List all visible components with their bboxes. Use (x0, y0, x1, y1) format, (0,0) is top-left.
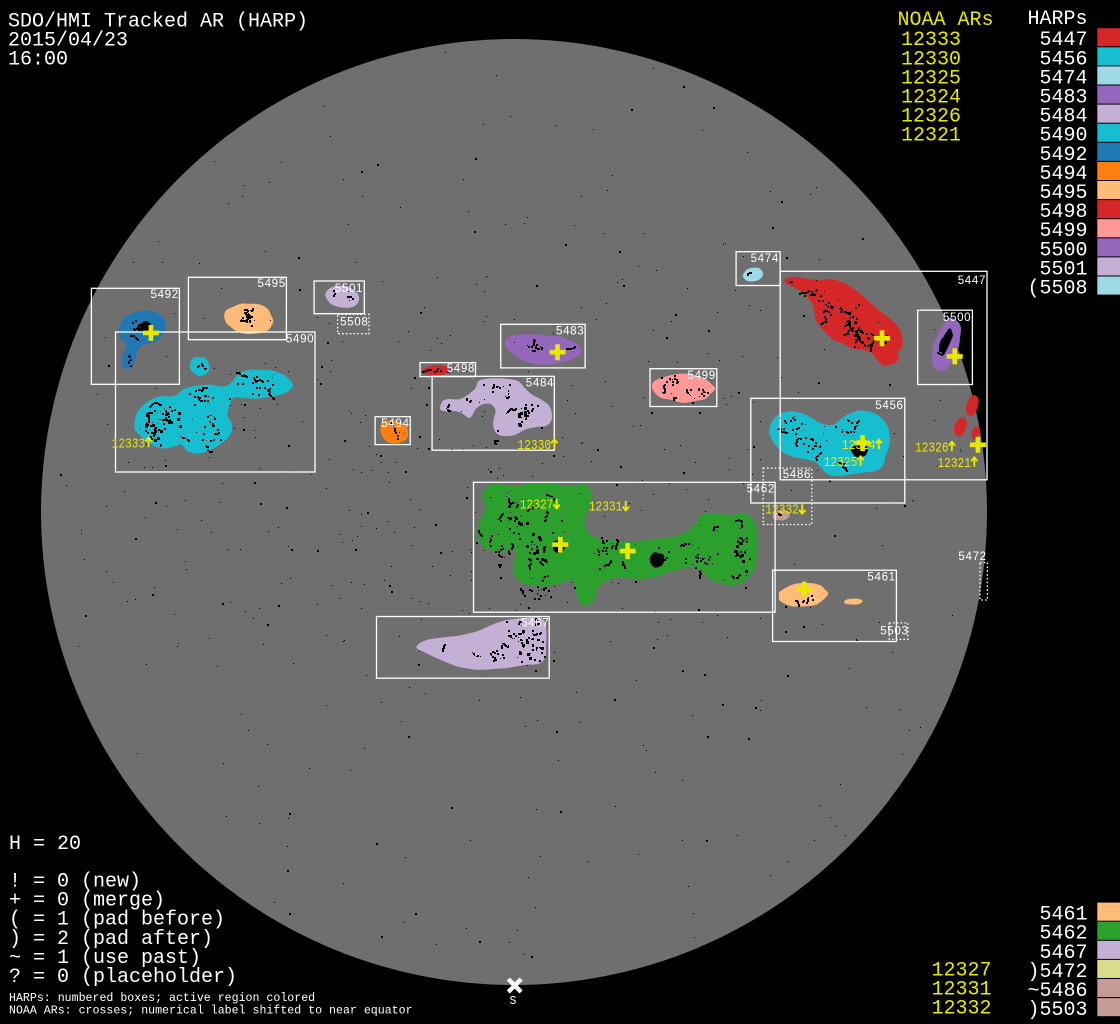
svg-text:HARPs: numbered boxes; active: HARPs: numbered boxes; active region col… (9, 992, 315, 1005)
svg-text:5467: 5467 (521, 616, 549, 629)
svg-text:5500: 5500 (943, 311, 971, 324)
svg-text:5447: 5447 (958, 274, 986, 287)
svg-text:12330: 12330 (518, 439, 552, 454)
svg-text:12332: 12332 (765, 504, 799, 519)
svg-text:12331: 12331 (589, 500, 623, 515)
svg-text:5462: 5462 (747, 482, 775, 495)
svg-text:16:00: 16:00 (8, 49, 68, 72)
svg-text:5492: 5492 (151, 288, 179, 301)
svg-text:5484: 5484 (526, 377, 554, 390)
svg-text:5474: 5474 (751, 252, 779, 265)
svg-text:5490: 5490 (286, 332, 314, 345)
svg-text:? = 0 (placeholder): ? = 0 (placeholder) (9, 966, 237, 989)
svg-text:12332: 12332 (931, 998, 991, 1021)
svg-text:5461: 5461 (867, 571, 895, 584)
svg-text:5495: 5495 (258, 277, 286, 290)
svg-text:NOAA ARs: crosses; numerical l: NOAA ARs: crosses; numerical label shift… (9, 1005, 413, 1018)
svg-text:S: S (510, 995, 517, 1008)
svg-text:H = 20: H = 20 (9, 833, 81, 856)
svg-text:12321: 12321 (937, 457, 971, 472)
svg-text:12321: 12321 (901, 125, 961, 148)
svg-text:5498: 5498 (447, 362, 475, 375)
svg-text:5494: 5494 (381, 417, 409, 430)
svg-text:5503: 5503 (880, 624, 908, 637)
svg-text:5501: 5501 (335, 282, 363, 295)
svg-text:12325: 12325 (824, 456, 858, 471)
svg-text:5483: 5483 (556, 324, 584, 337)
svg-text:)5503: )5503 (1027, 999, 1087, 1022)
svg-text:5499: 5499 (688, 369, 716, 382)
svg-text:5456: 5456 (875, 399, 903, 412)
svg-text:(5508: (5508 (1027, 278, 1087, 301)
svg-text:HARPs: HARPs (1027, 8, 1087, 31)
svg-text:12326: 12326 (915, 441, 949, 456)
svg-text:5472: 5472 (958, 550, 986, 563)
svg-text:5486: 5486 (783, 468, 811, 481)
svg-text:5508: 5508 (340, 315, 368, 328)
svg-text:12327: 12327 (520, 498, 554, 513)
svg-text:12333: 12333 (112, 437, 146, 452)
